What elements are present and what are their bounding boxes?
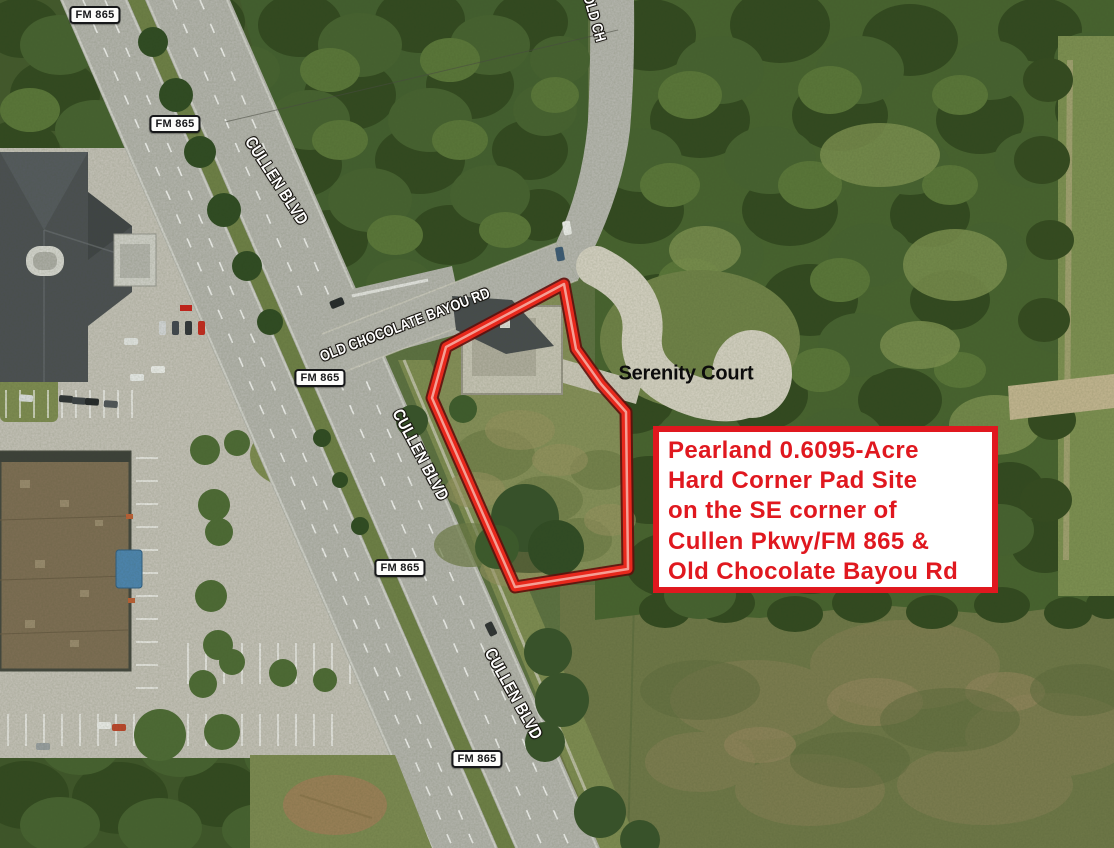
fm-865-shield: FM 865 <box>149 115 200 133</box>
parcel-callout-box: Pearland 0.6095-Acre Hard Corner Pad Sit… <box>653 426 998 593</box>
fm-865-shield: FM 865 <box>294 369 345 387</box>
callout-line: Hard Corner Pad Site <box>668 466 992 496</box>
fm-865-shield: FM 865 <box>451 750 502 768</box>
fm-865-shield: FM 865 <box>374 559 425 577</box>
serenity-court-label: Serenity Court <box>618 363 753 386</box>
callout-line: Pearland 0.6095-Acre <box>668 436 992 466</box>
fm-865-shield: FM 865 <box>69 6 120 24</box>
callout-line: Old Chocolate Bayou Rd <box>668 557 992 587</box>
callout-line: on the SE corner of <box>668 496 992 526</box>
callout-line: Cullen Pkwy/FM 865 & <box>668 527 992 557</box>
aerial-site-map: FM 865 FM 865 FM 865 FM 865 FM 865 CULLE… <box>0 0 1114 848</box>
